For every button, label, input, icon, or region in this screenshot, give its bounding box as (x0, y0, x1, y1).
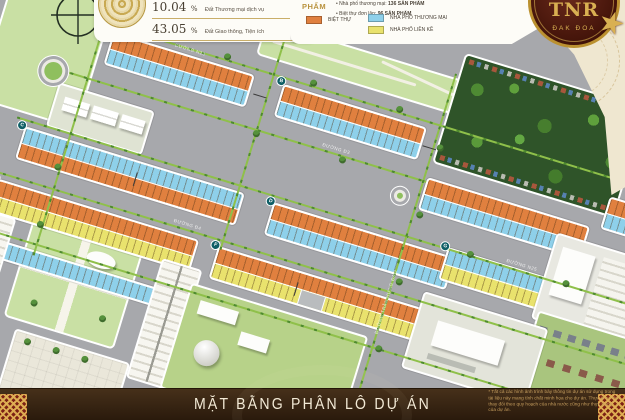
legend-swatch-rowhouse (368, 26, 384, 34)
legend-swatch-shophouse (368, 14, 384, 22)
landuse-stats-panel: 10.04 % Đất Thương mại dịch vụ 43.05 % Đ… (94, 0, 318, 42)
stat-value: 10.04 (152, 0, 186, 14)
ethnic-pattern-left (0, 394, 27, 420)
legend-heading: PHẨM (302, 2, 326, 11)
stat-unit: % (191, 5, 198, 13)
stat-unit: % (191, 27, 198, 35)
stat-row: 10.04 % Đất Thương mại dịch vụ (152, 0, 310, 19)
stat-label: Đất Giao thông, Tiện ích (205, 29, 264, 35)
masterplan-screenshot: ĐƯỜNG Đ3 ĐƯỜNG Đ4 ĐƯỜNG N23 ĐƯỜNG N25 ĐƯ… (0, 0, 625, 420)
legend-panel: PHẨM • Nhà phố thương mại: 136 SẢN PHẨM … (290, 0, 548, 44)
stat-row: 43.05 % Đất Giao thông, Tiện ích (152, 19, 310, 41)
legend-bullet: • Nhà phố thương mại: 136 SẢN PHẨM (336, 0, 424, 10)
legend-label: NHÀ PHỐ THƯƠNG MẠI (390, 15, 447, 21)
gold-emblem-icon (98, 0, 146, 28)
sports-dome (190, 337, 222, 369)
stat-label: Đất Thương mại dịch vụ (205, 7, 264, 13)
site-plan-canvas: ĐƯỜNG Đ3 ĐƯỜNG Đ4 ĐƯỜNG N23 ĐƯỜNG N25 ĐƯ… (0, 0, 625, 420)
legend-label: BIỆT THỰ (328, 17, 351, 23)
roundabout-small (392, 188, 407, 203)
legend-swatch-villa (306, 16, 322, 24)
stat-value: 43.05 (152, 22, 186, 36)
legend-label: NHÀ PHỐ LIỀN KỀ (390, 27, 433, 33)
disclaimer-text: * Tất cả các hình ảnh trình bày thông ti… (488, 390, 621, 414)
